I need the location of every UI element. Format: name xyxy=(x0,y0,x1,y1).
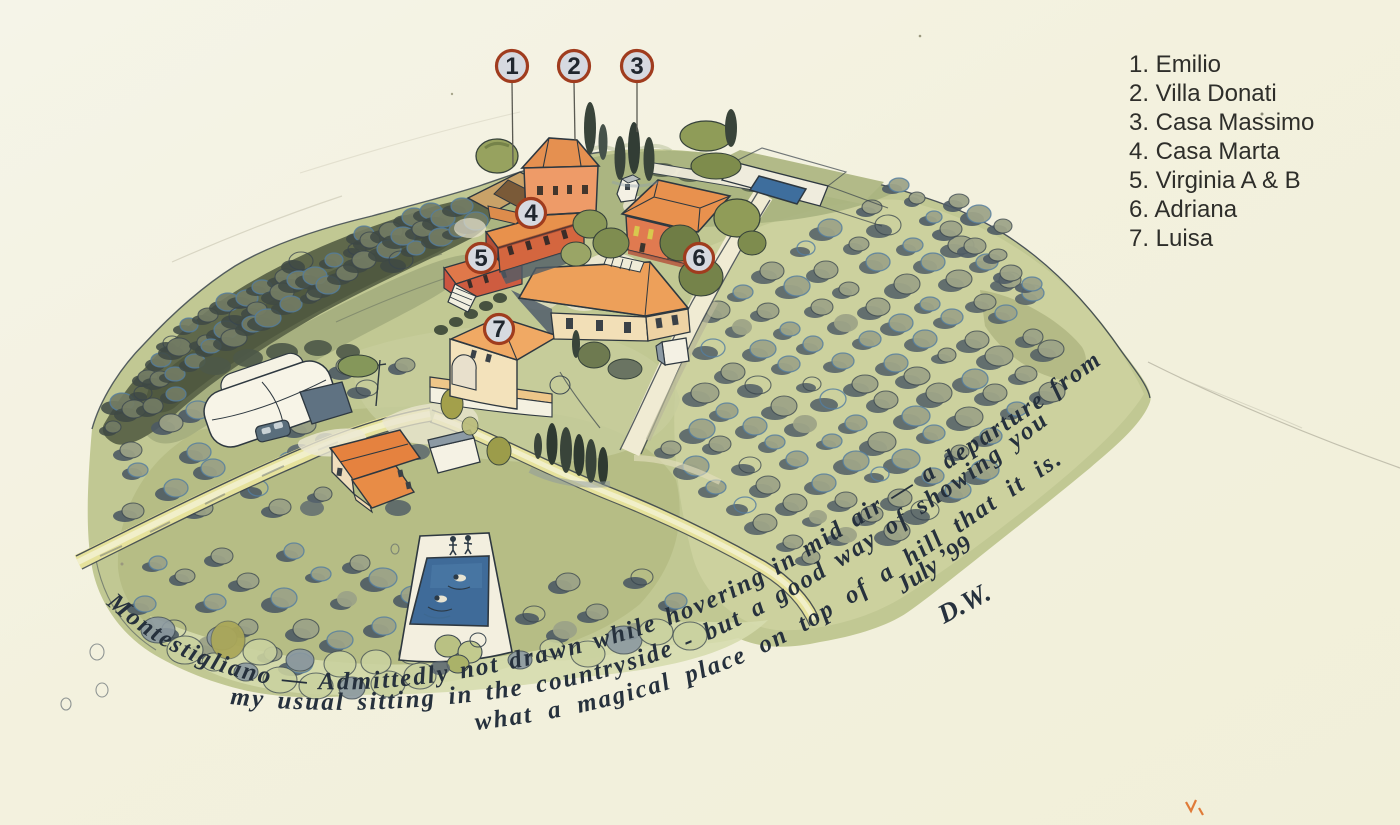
svg-text:3: 3 xyxy=(630,53,643,80)
svg-text:1. Emilio: 1. Emilio xyxy=(1129,51,1221,78)
svg-text:4: 4 xyxy=(524,200,538,227)
svg-text:7: 7 xyxy=(492,316,505,343)
svg-text:6: 6 xyxy=(692,245,705,272)
svg-text:5: 5 xyxy=(474,245,487,272)
svg-text:4. Casa Marta: 4. Casa Marta xyxy=(1129,138,1280,165)
svg-text:2: 2 xyxy=(567,53,580,80)
svg-text:1: 1 xyxy=(505,53,518,80)
svg-text:2. Villa Donati: 2. Villa Donati xyxy=(1129,80,1277,107)
svg-text:7. Luisa: 7. Luisa xyxy=(1129,225,1214,252)
svg-text:5. Virginia A & B: 5. Virginia A & B xyxy=(1129,167,1301,194)
svg-text:3. Casa Massimo: 3. Casa Massimo xyxy=(1129,109,1314,136)
svg-text:6. Adriana: 6. Adriana xyxy=(1129,196,1238,223)
